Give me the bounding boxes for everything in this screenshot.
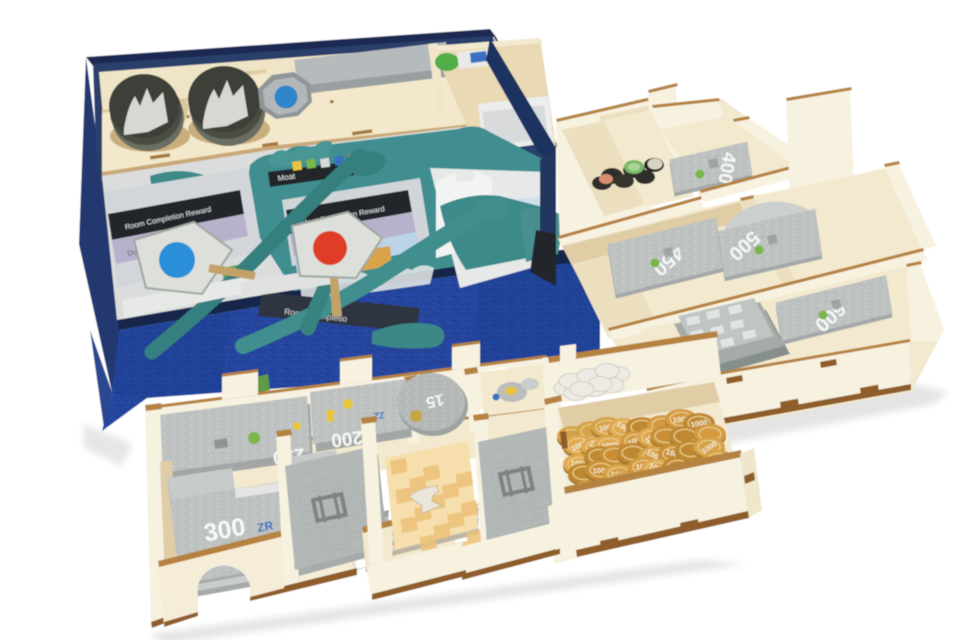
- svg-text:200: 200: [330, 426, 364, 451]
- svg-text:15: 15: [424, 390, 445, 410]
- svg-text:ZR: ZR: [256, 518, 275, 535]
